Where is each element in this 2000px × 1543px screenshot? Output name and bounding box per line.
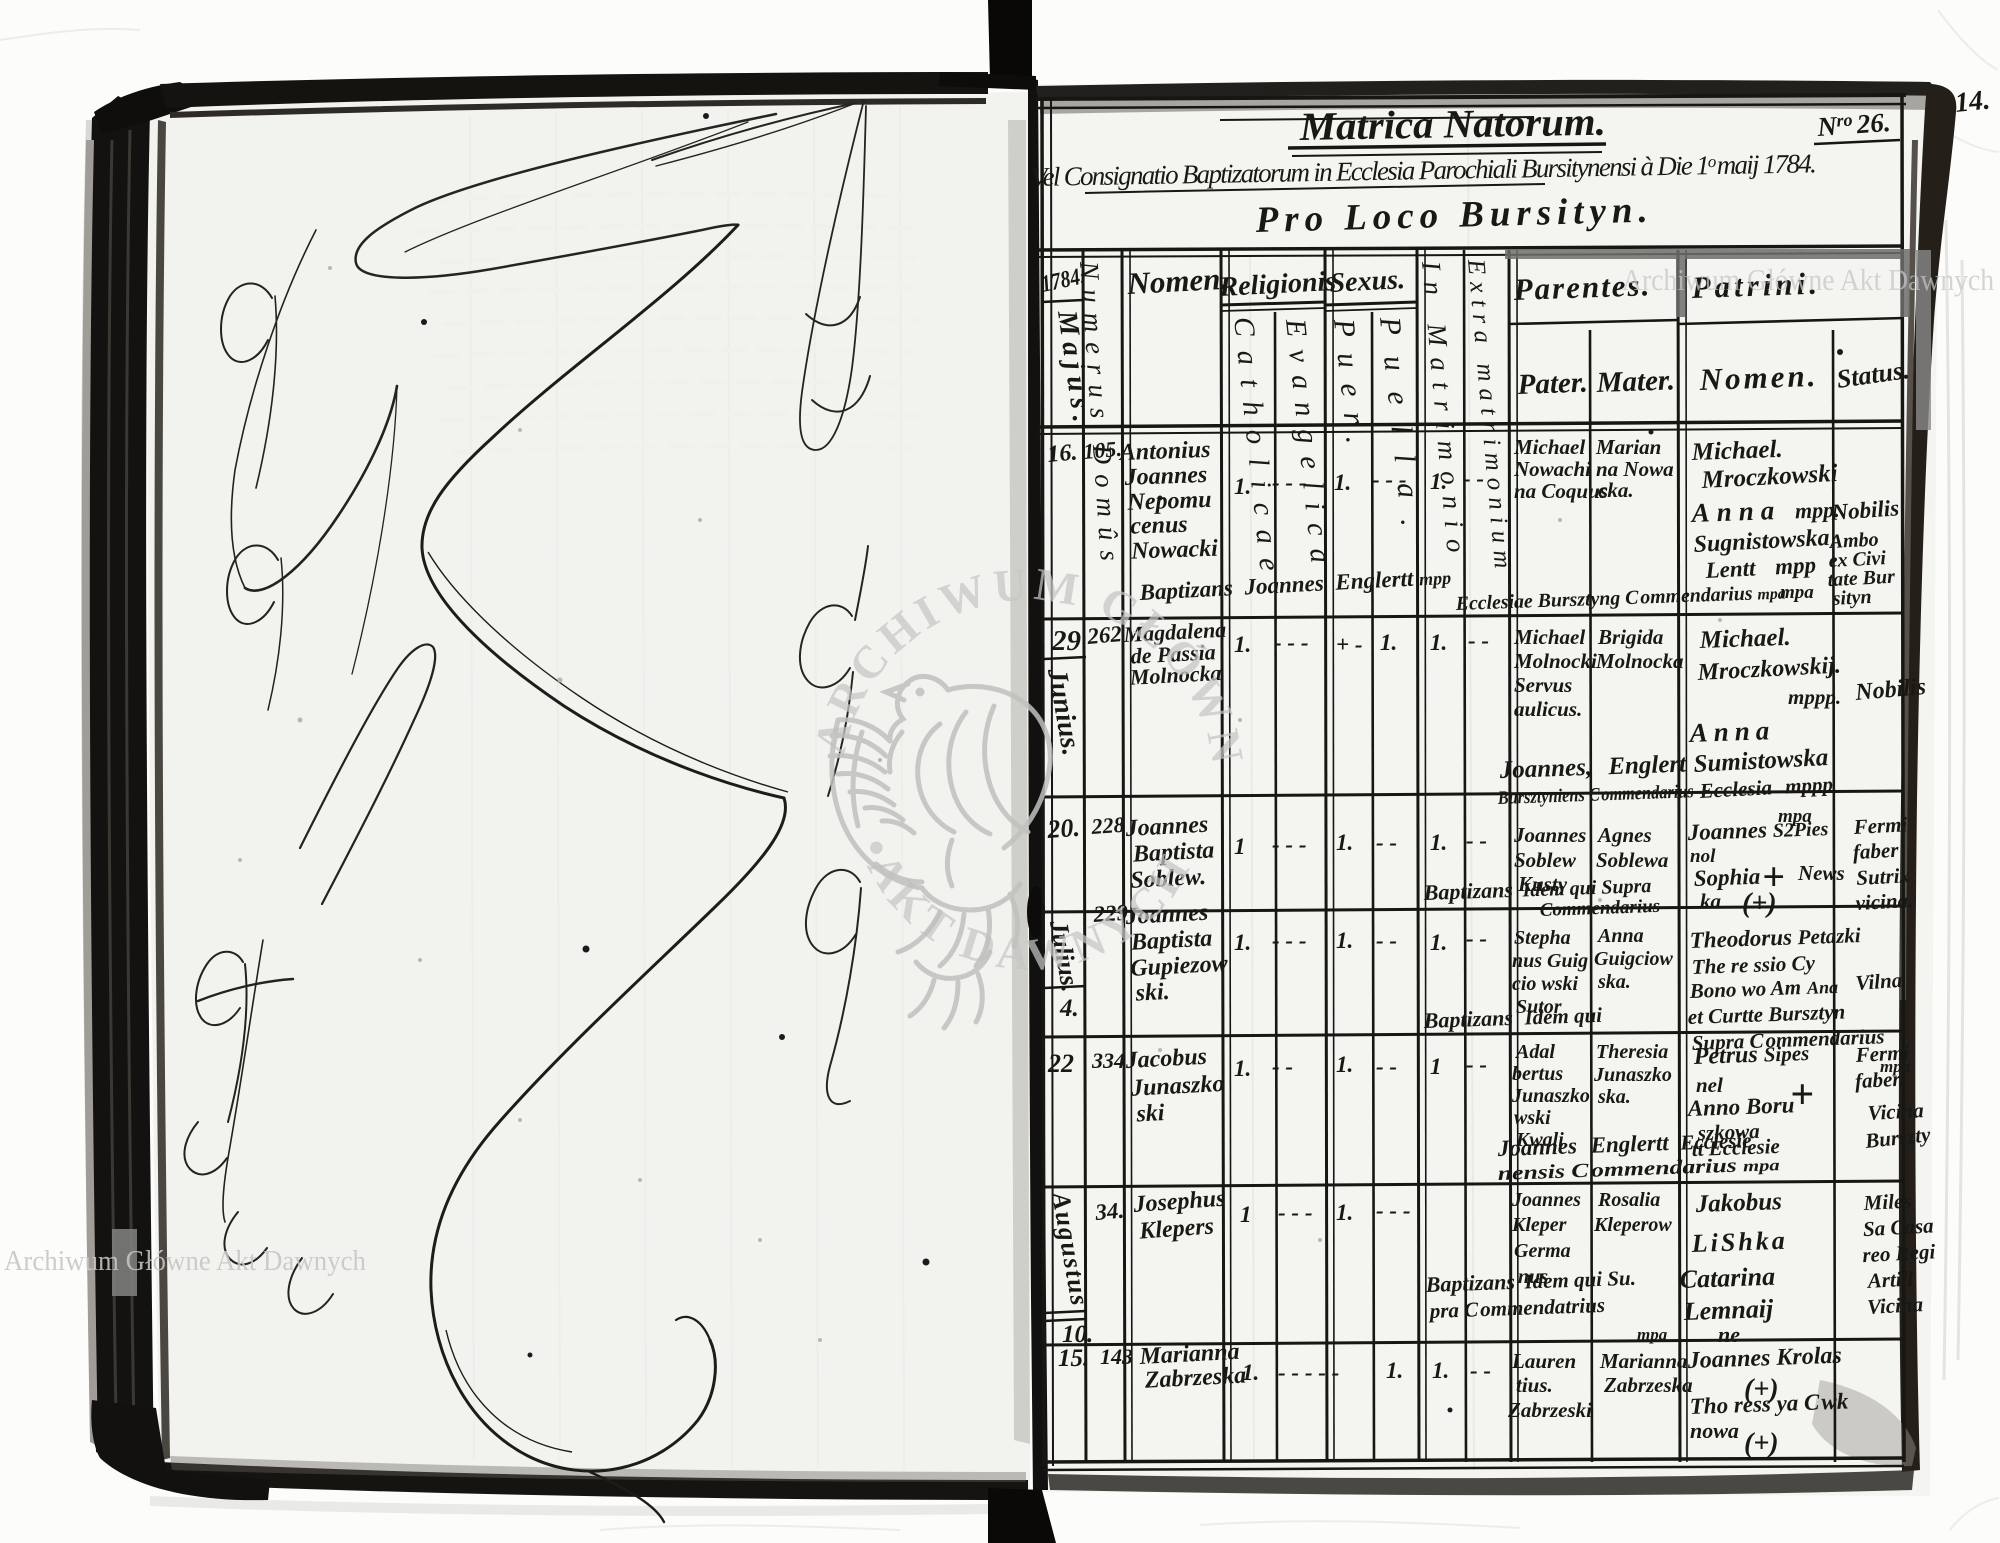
- svg-text:1.: 1.: [1430, 630, 1447, 655]
- svg-text:1: 1: [1430, 1054, 1442, 1079]
- svg-text:10.: 10.: [1062, 1321, 1093, 1348]
- svg-text:1.: 1.: [1336, 928, 1353, 953]
- svg-text:- -: - -: [1466, 828, 1487, 853]
- svg-text:Michael.: Michael.: [1690, 436, 1783, 466]
- svg-text:Anna: Anna: [1687, 715, 1776, 748]
- svg-text:Sophia: Sophia: [1693, 864, 1760, 891]
- svg-text:- - -: - - -: [1372, 467, 1406, 492]
- svg-text:1.: 1.: [1430, 930, 1447, 955]
- svg-text:(+): (+): [1742, 888, 1777, 919]
- svg-text:16.: 16.: [1046, 439, 1078, 468]
- svg-text:1.: 1.: [1430, 469, 1447, 494]
- svg-text:Petrus Sipes: Petrus Sipes: [1692, 1040, 1809, 1070]
- svg-text:MariannaZabrzeska: MariannaZabrzeska: [1138, 1339, 1247, 1394]
- svg-text:Sexus.: Sexus.: [1329, 264, 1406, 299]
- svg-text:- -: - -: [1466, 1052, 1487, 1077]
- svg-text:Matrica Natorum.: Matrica Natorum.: [1298, 99, 1606, 149]
- svg-text:- -: - -: [1468, 628, 1489, 653]
- svg-text:1.: 1.: [1432, 1358, 1449, 1383]
- svg-text:Anno Boru: Anno Boru: [1685, 1092, 1795, 1121]
- svg-text:1.: 1.: [1386, 1358, 1403, 1383]
- svg-text:228: 228: [1090, 812, 1126, 839]
- svg-text:14.: 14.: [1953, 84, 1991, 118]
- svg-text:- -: - -: [1272, 1054, 1293, 1079]
- svg-text:mpa: mpa: [1637, 1325, 1668, 1344]
- svg-text:34.: 34.: [1093, 1198, 1125, 1225]
- svg-text:+ -: + -: [1336, 632, 1363, 657]
- svg-text:Joannes Krolas: Joannes Krolas: [1686, 1343, 1842, 1374]
- svg-text:Religionis: Religionis: [1218, 266, 1337, 303]
- svg-text:1.: 1.: [1334, 470, 1351, 495]
- svg-text:1.: 1.: [1336, 1052, 1353, 1077]
- svg-text:1.: 1.: [1380, 630, 1397, 655]
- svg-text:Nomen.: Nomen.: [1698, 358, 1819, 397]
- svg-text:nol: nol: [1690, 846, 1716, 867]
- svg-text:1: 1: [1240, 1202, 1252, 1227]
- svg-text:Nomen.: Nomen.: [1126, 261, 1229, 301]
- svg-text:Vicina: Vicina: [1867, 1098, 1924, 1125]
- svg-text:- - -: - - -: [1272, 470, 1306, 495]
- svg-text:29: 29: [1051, 625, 1081, 657]
- svg-text:Archiwum Główne Akt Dawnych: Archiwum Główne Akt Dawnych: [4, 1245, 366, 1277]
- svg-text:Michael.: Michael.: [1698, 624, 1791, 654]
- svg-text:Nobilis: Nobilis: [1830, 495, 1900, 525]
- svg-text:1.: 1.: [1234, 1056, 1251, 1081]
- svg-text:1.: 1.: [1234, 930, 1251, 955]
- svg-text:(+): (+): [1744, 1428, 1779, 1459]
- svg-text:1.: 1.: [1234, 474, 1251, 499]
- svg-text:20.: 20.: [1045, 813, 1080, 844]
- svg-text:- -: - -: [1463, 466, 1484, 491]
- svg-text:Commendarius: Commendarius: [1539, 896, 1660, 921]
- svg-text:Catarina: Catarina: [1679, 1262, 1775, 1294]
- svg-text:1.: 1.: [1336, 830, 1353, 855]
- svg-text:AntoniusJoannesNepomucenusNowa: AntoniusJoannesNepomucenusNowacki: [1117, 437, 1218, 565]
- svg-text:- -: - -: [1466, 926, 1487, 951]
- svg-text:- - -: - - -: [1278, 1200, 1312, 1225]
- svg-text:MariannaZabrzeska: MariannaZabrzeska: [1599, 1349, 1693, 1397]
- svg-text:Jakobus: Jakobus: [1694, 1188, 1782, 1218]
- svg-text:News: News: [1797, 861, 1845, 885]
- svg-text:nel: nel: [1696, 1073, 1723, 1097]
- svg-text:1: 1: [1234, 834, 1246, 859]
- svg-text:Joannes S2Pies: Joannes S2Pies: [1686, 815, 1829, 845]
- svg-text:1.: 1.: [1430, 830, 1447, 855]
- svg-text:334: 334: [1091, 1048, 1125, 1073]
- svg-text:1.: 1.: [1242, 1360, 1259, 1385]
- svg-text:nowa: nowa: [1690, 1418, 1739, 1443]
- svg-text:LiShka: LiShka: [1690, 1226, 1788, 1258]
- svg-text:Archiwum Główne Akt Dawnych: Archiwum Główne Akt Dawnych: [1622, 262, 1994, 297]
- svg-text:Pater.: Pater.: [1516, 367, 1588, 401]
- svg-text:105.: 105.: [1082, 436, 1123, 464]
- svg-text:- - -: - - -: [1274, 630, 1308, 655]
- svg-text:- - -: - - -: [1272, 928, 1306, 953]
- svg-text:- -: - -: [1376, 928, 1397, 953]
- svg-text:- - -: - - -: [1272, 832, 1306, 857]
- svg-text:1.: 1.: [1336, 1200, 1353, 1225]
- svg-text:22: 22: [1047, 1049, 1074, 1078]
- svg-text:Mater.: Mater.: [1595, 364, 1675, 399]
- svg-text:Vilna: Vilna: [1855, 968, 1903, 995]
- svg-text:- - -: - - -: [1376, 1198, 1410, 1223]
- svg-text:- -: - -: [1376, 830, 1397, 855]
- svg-text:1.: 1.: [1234, 632, 1251, 657]
- svg-text:- -: - -: [1470, 1358, 1491, 1383]
- svg-text:4.: 4.: [1059, 995, 1079, 1022]
- svg-text:mppp.: mppp.: [1788, 685, 1841, 709]
- svg-text:- -: - -: [1376, 1054, 1397, 1079]
- svg-text:143: 143: [1100, 1344, 1133, 1369]
- svg-text:- - - - -: - - - - -: [1278, 1360, 1339, 1385]
- svg-text:ne: ne: [1718, 1322, 1740, 1347]
- svg-text:ka: ka: [1700, 889, 1721, 913]
- svg-text:15.: 15.: [1058, 1345, 1089, 1372]
